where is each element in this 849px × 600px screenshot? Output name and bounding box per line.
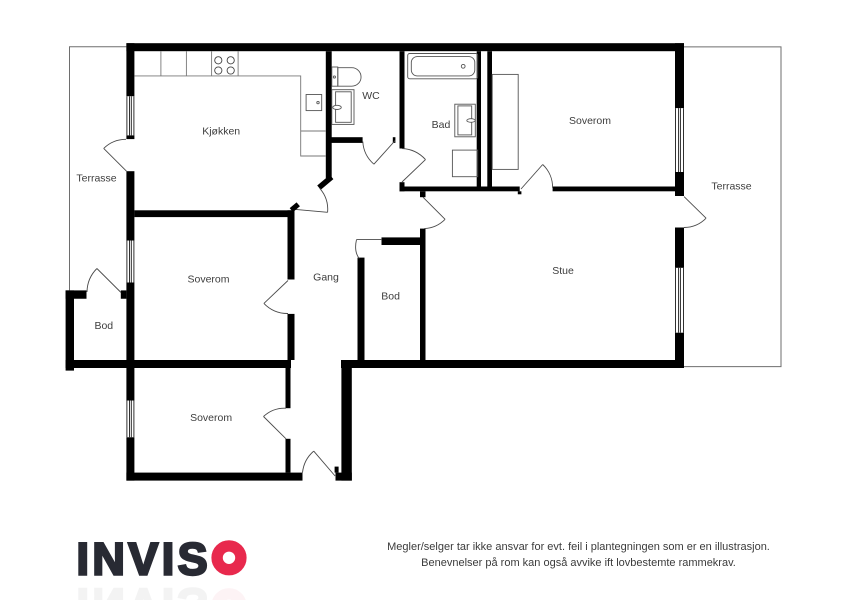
svg-text:Terrasse: Terrasse (711, 181, 751, 193)
svg-text:Terrasse: Terrasse (76, 172, 116, 184)
svg-text:Soverom: Soverom (187, 274, 229, 286)
svg-text:Benevnelser på rom kan også av: Benevnelser på rom kan også avvike ift l… (421, 557, 736, 569)
svg-text:Bad: Bad (432, 119, 451, 131)
svg-text:Kjøkken: Kjøkken (202, 126, 240, 138)
svg-text:Soverom: Soverom (569, 115, 611, 127)
svg-text:Bod: Bod (381, 290, 400, 302)
svg-text:Bod: Bod (94, 320, 113, 332)
svg-text:WC: WC (362, 90, 380, 102)
svg-text:Gang: Gang (313, 271, 339, 283)
svg-text:Soverom: Soverom (190, 412, 232, 424)
svg-text:Stue: Stue (552, 265, 574, 277)
svg-text:INVIS: INVIS (77, 534, 212, 585)
svg-text:Megler/selger tar ikke ansvar: Megler/selger tar ikke ansvar for evt. f… (387, 541, 770, 553)
